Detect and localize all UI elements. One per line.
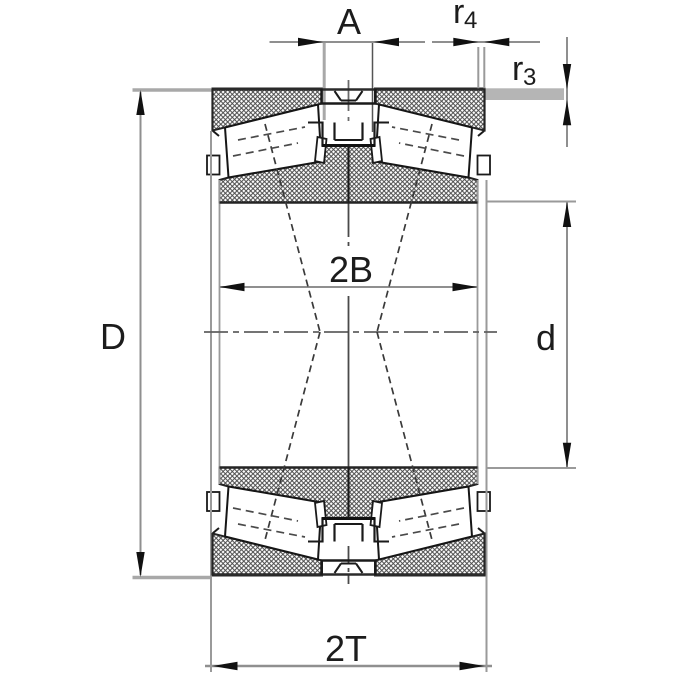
svg-text:r: r [512,50,523,88]
svg-text:2B: 2B [329,249,373,290]
svg-text:r: r [453,0,464,31]
svg-text:d: d [536,317,556,358]
svg-text:A: A [337,1,361,42]
svg-text:4: 4 [464,7,477,34]
svg-text:D: D [100,316,126,357]
svg-text:3: 3 [523,64,536,91]
svg-text:2T: 2T [325,628,367,669]
